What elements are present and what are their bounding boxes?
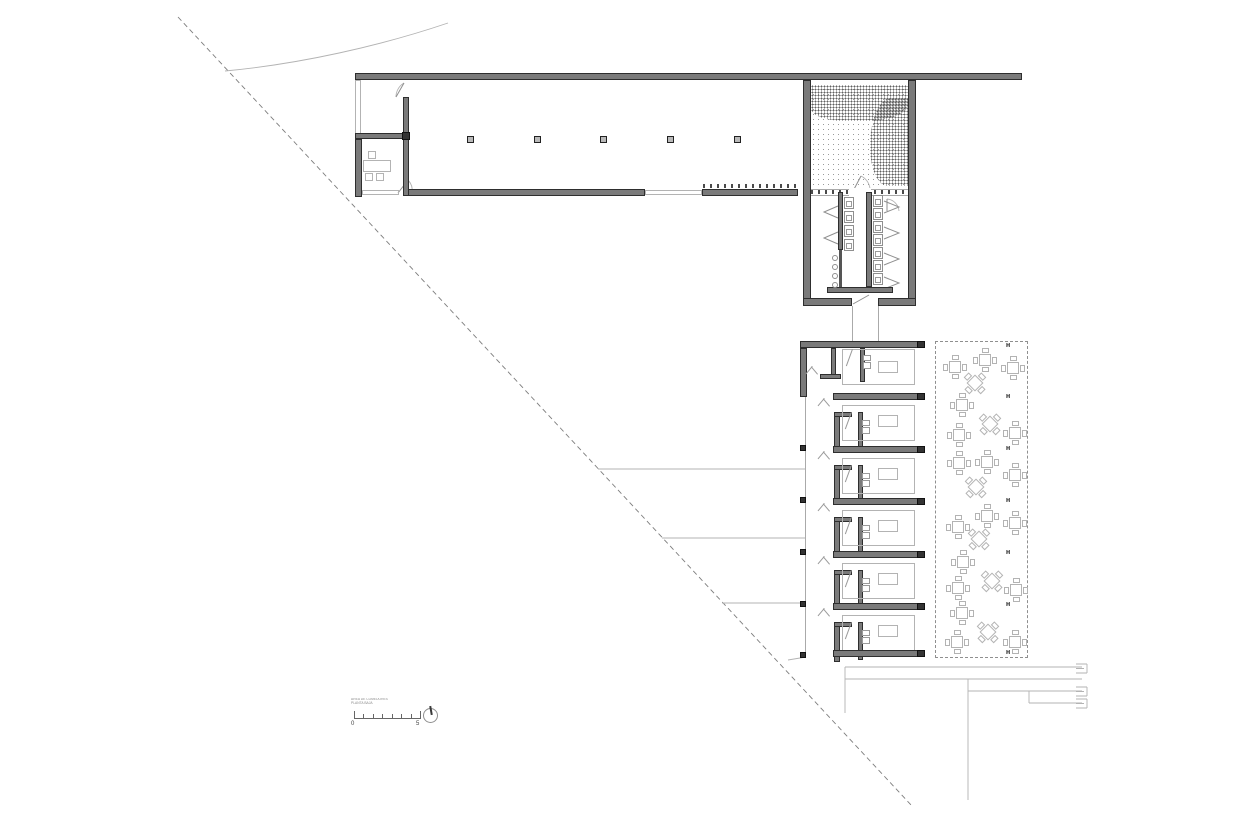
dining-chair <box>984 504 991 509</box>
dining-table <box>1009 517 1021 529</box>
dining-chair <box>966 460 971 467</box>
office-right-wall <box>403 97 409 196</box>
dining-chair <box>955 595 962 600</box>
tree-canopy-right <box>870 98 908 186</box>
dining-table <box>957 556 969 568</box>
room-floor-outline <box>842 405 915 441</box>
walkway-edge-line <box>805 397 806 658</box>
patio-left-wall <box>803 80 811 306</box>
toilet-bowl <box>875 238 881 244</box>
dining-table <box>956 607 968 619</box>
hall-column <box>667 136 674 143</box>
dining-table-group <box>951 550 975 574</box>
dining-table-group <box>950 393 974 417</box>
toilet-bowl <box>875 225 881 231</box>
room-wall-cap <box>917 603 925 610</box>
dining-chair <box>1013 597 1020 602</box>
dining-table <box>949 361 961 373</box>
dining-table-group <box>975 450 999 474</box>
dining-chair <box>955 515 962 520</box>
walkway-column <box>800 652 806 658</box>
site-terrace-lines <box>598 469 806 660</box>
dining-chair <box>982 348 989 353</box>
dining-chair <box>966 432 971 439</box>
dining-chair <box>1010 356 1017 361</box>
dining-table <box>952 521 964 533</box>
dining-chair <box>1022 639 1027 646</box>
dining-chair <box>1012 649 1019 654</box>
urinal-fixture <box>832 282 838 288</box>
toilet-bowl <box>846 215 852 221</box>
dining-chair <box>959 620 966 625</box>
dining-chair <box>1012 511 1019 516</box>
dining-chair <box>959 601 966 606</box>
dining-table-group <box>950 601 974 625</box>
hall-left-window <box>355 80 361 137</box>
dining-chair <box>970 559 975 566</box>
office-bottom-window <box>362 190 399 195</box>
dining-chair <box>1012 463 1019 468</box>
dining-table <box>1007 362 1019 374</box>
sanitary-bottom-wall-left <box>803 298 852 306</box>
office-cabinet-1 <box>365 173 373 181</box>
walkway-column <box>800 497 806 503</box>
room-floor-outline <box>842 615 915 651</box>
office-wall-column <box>402 132 410 140</box>
floor-plan-canvas: AREA DE COMEDORES PLANTA BAJA 0 5 HHHHHH… <box>0 0 1260 838</box>
dining-chair <box>952 374 959 379</box>
dining-table-group <box>1003 463 1027 487</box>
scale-bar-tick <box>363 714 364 719</box>
scale-bar-tick <box>392 714 393 719</box>
toilet-bowl <box>875 277 881 283</box>
dining-table-group <box>943 355 967 379</box>
dining-chair <box>1023 587 1028 594</box>
dining-chair <box>947 460 952 467</box>
dining-chair <box>950 610 955 617</box>
adjacent-stair-marks <box>1076 664 1087 708</box>
scale-bar-tick <box>373 714 374 719</box>
hall-bottom-window <box>645 190 702 195</box>
dining-column-marker: H <box>1006 343 1010 349</box>
dining-table <box>953 457 965 469</box>
dining-column-marker: H <box>1006 602 1010 608</box>
hall-top-wall <box>355 73 1022 80</box>
corridor-line-left <box>852 306 853 341</box>
dining-chair <box>1020 365 1025 372</box>
dining-chair <box>945 639 950 646</box>
dining-chair <box>954 630 961 635</box>
dining-chair <box>1004 587 1009 594</box>
office-top-wall <box>355 133 407 139</box>
toilet-bowl <box>875 251 881 257</box>
scale-bar-tick <box>382 714 383 719</box>
dining-chair <box>960 569 967 574</box>
toilet-bowl <box>846 229 852 235</box>
dining-table-group <box>1003 421 1027 445</box>
dining-chair <box>962 364 967 371</box>
dining-chair <box>943 364 948 371</box>
dining-column-marker: H <box>1006 650 1010 656</box>
dining-table-group <box>1004 578 1028 602</box>
toilet-bowl <box>875 199 881 205</box>
dining-chair <box>956 423 963 428</box>
dining-chair <box>984 450 991 455</box>
dining-chair <box>965 524 970 531</box>
scale-bar-tick <box>411 714 412 719</box>
stall-partition-left <box>838 192 843 250</box>
toilet-bowl <box>875 264 881 270</box>
dining-chair <box>956 470 963 475</box>
dining-column-marker: H <box>1006 446 1010 452</box>
dining-column-marker: H <box>1006 394 1010 400</box>
urinal-screen-wall <box>839 250 842 290</box>
dining-chair <box>956 451 963 456</box>
hall-column <box>534 136 541 143</box>
room-floor-outline <box>842 458 915 494</box>
scale-five-label: 5 <box>416 721 419 727</box>
dining-table <box>951 636 963 648</box>
dining-chair <box>952 355 959 360</box>
hall-column <box>467 136 474 143</box>
sanitary-bottom-wall-right <box>878 298 916 306</box>
dining-chair <box>1010 375 1017 380</box>
dining-column-marker: H <box>1006 498 1010 504</box>
dining-chair <box>955 576 962 581</box>
dining-chair <box>994 459 999 466</box>
dining-table <box>981 510 993 522</box>
dining-chair <box>1003 472 1008 479</box>
dining-chair <box>955 534 962 539</box>
dining-table-group <box>947 423 971 447</box>
dining-chair <box>1012 482 1019 487</box>
room-wall-cap <box>917 393 925 400</box>
dining-table <box>1010 584 1022 596</box>
boundary-diagonal-line <box>178 17 912 806</box>
dining-table <box>981 456 993 468</box>
dining-chair <box>1003 520 1008 527</box>
room-inner-stub <box>820 374 841 379</box>
hall-column <box>600 136 607 143</box>
dining-chair <box>994 513 999 520</box>
room-top-wall <box>833 446 920 453</box>
dining-chair <box>959 393 966 398</box>
hall-bottom-wall-east <box>702 189 798 196</box>
dining-chair <box>984 469 991 474</box>
hall-louver-ticks <box>703 184 798 188</box>
room-wall-cap <box>917 341 925 348</box>
dining-chair <box>965 585 970 592</box>
dining-chair <box>975 513 980 520</box>
dining-table-group <box>1003 511 1027 535</box>
dining-table <box>979 354 991 366</box>
left-stall-doors <box>824 206 838 244</box>
dining-table <box>952 582 964 594</box>
contour-line <box>225 23 448 71</box>
scale-caption-line2: PLANTA BAJA <box>351 702 388 706</box>
dining-table <box>1009 636 1021 648</box>
scale-zero-label: 0 <box>351 721 354 727</box>
dining-chair <box>1022 430 1027 437</box>
room-top-wall <box>833 603 920 610</box>
dining-table <box>953 429 965 441</box>
dining-chair <box>951 559 956 566</box>
dining-chair <box>975 459 980 466</box>
dining-chair <box>1003 430 1008 437</box>
room-top-wall <box>833 393 920 400</box>
scale-bar-tick <box>354 711 355 719</box>
dining-table <box>1009 469 1021 481</box>
walkway-column <box>800 549 806 555</box>
room-top-wall <box>833 551 920 558</box>
dining-chair <box>1013 578 1020 583</box>
urinal-fixture <box>832 255 838 261</box>
dining-chair <box>1012 630 1019 635</box>
office-chair <box>368 151 376 159</box>
dining-chair <box>946 524 951 531</box>
office-desk <box>363 160 391 172</box>
toilet-bowl <box>846 243 852 249</box>
dining-table <box>956 399 968 411</box>
room-floor-outline <box>842 563 915 599</box>
rooms-bottom-wall <box>833 650 920 657</box>
room-wall-cap <box>917 650 925 657</box>
dining-chair <box>969 402 974 409</box>
urinal-fixture <box>832 264 838 270</box>
scale-caption: AREA DE COMEDORES PLANTA BAJA <box>351 698 388 706</box>
dining-chair <box>947 432 952 439</box>
dining-chair <box>1022 472 1027 479</box>
dining-chair <box>992 357 997 364</box>
dining-chair <box>1012 530 1019 535</box>
room-floor-outline <box>842 510 915 546</box>
room-top-wall <box>800 341 921 348</box>
dining-chair <box>1022 520 1027 527</box>
dining-table-group <box>947 451 971 475</box>
room-wall-cap <box>917 498 925 505</box>
stall-partition-central <box>866 192 872 287</box>
office-cabinet-2 <box>376 173 384 181</box>
hall-bottom-wall-west <box>408 189 645 196</box>
dining-chair <box>969 610 974 617</box>
dining-chair <box>1012 440 1019 445</box>
adjacent-building-lines <box>845 667 1082 800</box>
toilet-bowl <box>875 212 881 218</box>
scale-bar-tick <box>420 711 421 719</box>
right-stall-doors <box>884 201 899 289</box>
dining-table <box>1009 427 1021 439</box>
dining-chair <box>973 357 978 364</box>
walkway-column <box>800 445 806 451</box>
dining-chair <box>950 402 955 409</box>
dining-chair <box>954 649 961 654</box>
dining-table-group <box>1001 356 1025 380</box>
scale-bar-tick <box>401 714 402 719</box>
room-top-wall <box>833 498 920 505</box>
hall-column <box>734 136 741 143</box>
dining-table-group <box>945 630 969 654</box>
dining-table-group <box>946 576 970 600</box>
dining-chair <box>1012 421 1019 426</box>
urinal-fixture <box>832 273 838 279</box>
corridor-line-right <box>878 306 879 341</box>
room-wall-cap <box>917 551 925 558</box>
office-left-wall <box>355 139 362 197</box>
dining-chair <box>960 550 967 555</box>
patio-right-wall <box>908 80 916 306</box>
dining-chair <box>982 367 989 372</box>
dining-chair <box>1001 365 1006 372</box>
sanitary-tee-wall <box>827 287 893 293</box>
toilet-bowl <box>846 201 852 207</box>
walkway-column <box>800 601 806 607</box>
dining-chair <box>946 585 951 592</box>
room-wall-cap <box>917 446 925 453</box>
site-linework <box>0 0 1260 838</box>
dining-chair <box>1003 639 1008 646</box>
dining-chair <box>959 412 966 417</box>
dining-column-marker: H <box>1006 550 1010 556</box>
dining-chair <box>964 639 969 646</box>
sanitary-exit-door-leaf <box>853 295 869 304</box>
dining-chair <box>956 442 963 447</box>
room-floor-outline <box>842 349 915 385</box>
